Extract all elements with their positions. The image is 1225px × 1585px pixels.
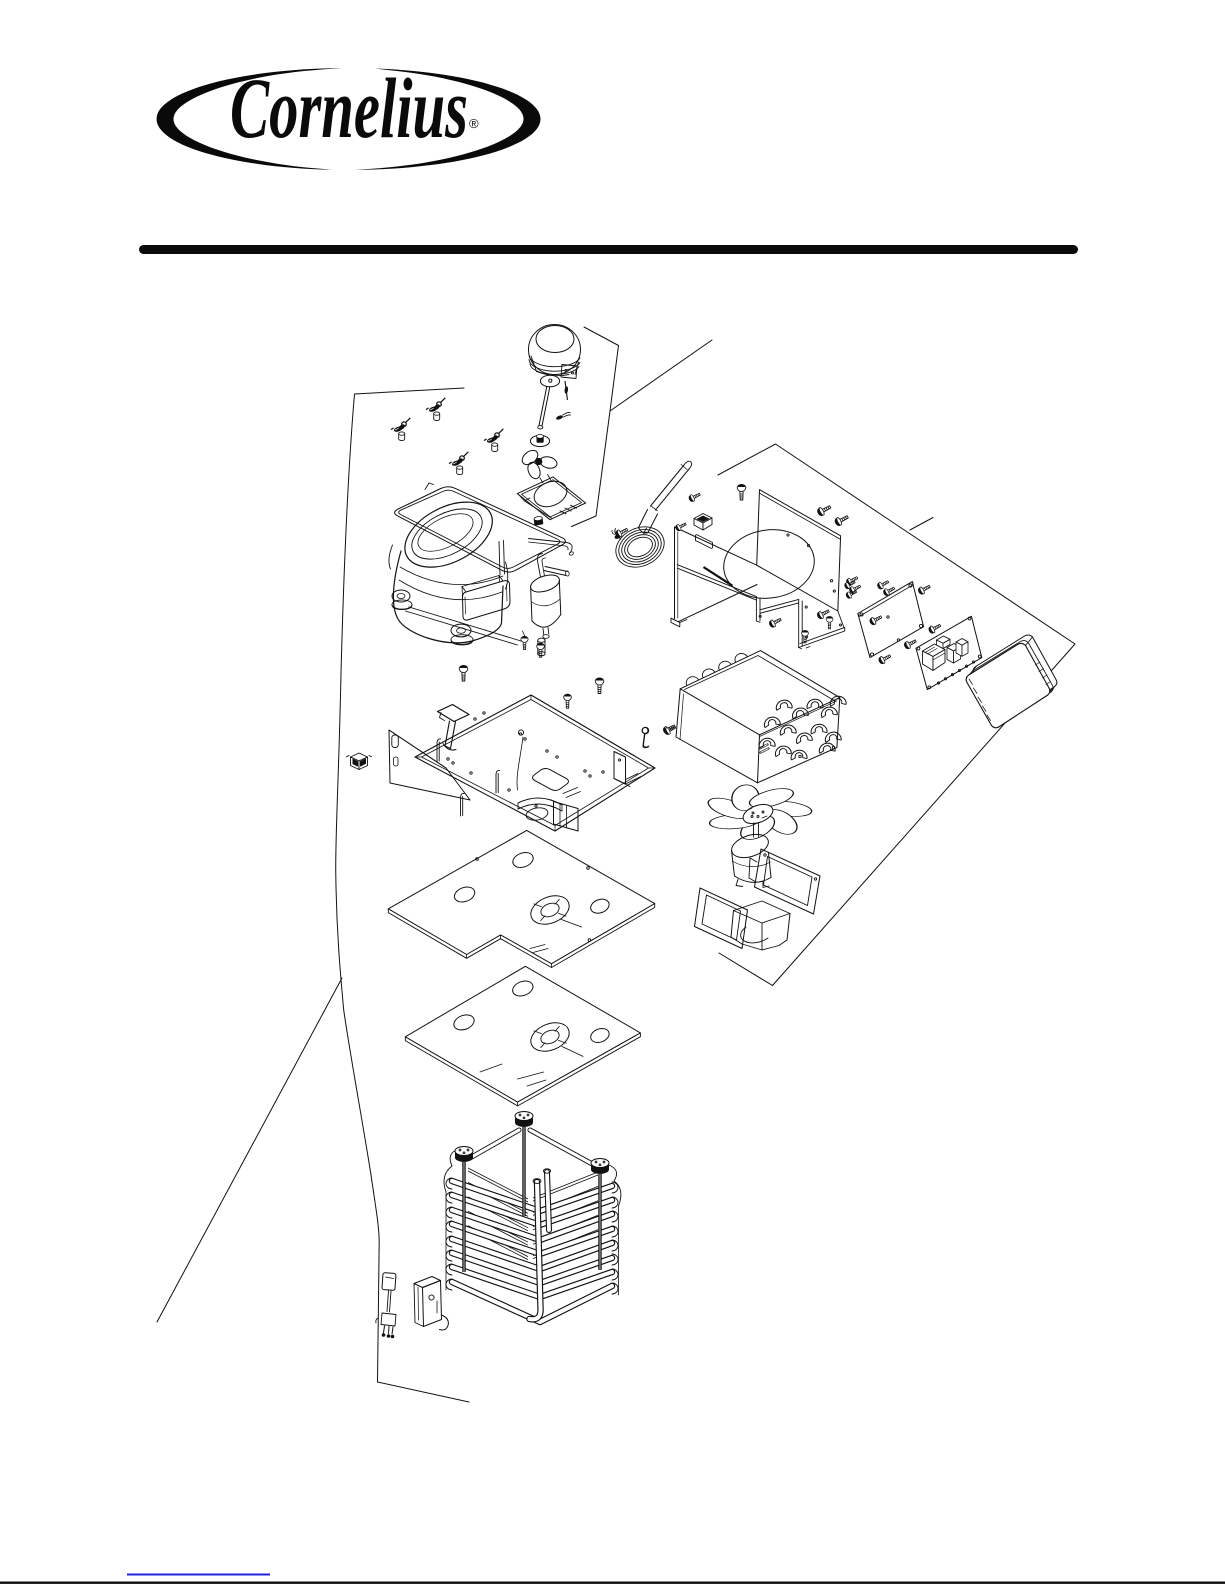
svg-text:Cornelius: Cornelius: [230, 60, 468, 156]
svg-text:®: ®: [469, 116, 479, 131]
